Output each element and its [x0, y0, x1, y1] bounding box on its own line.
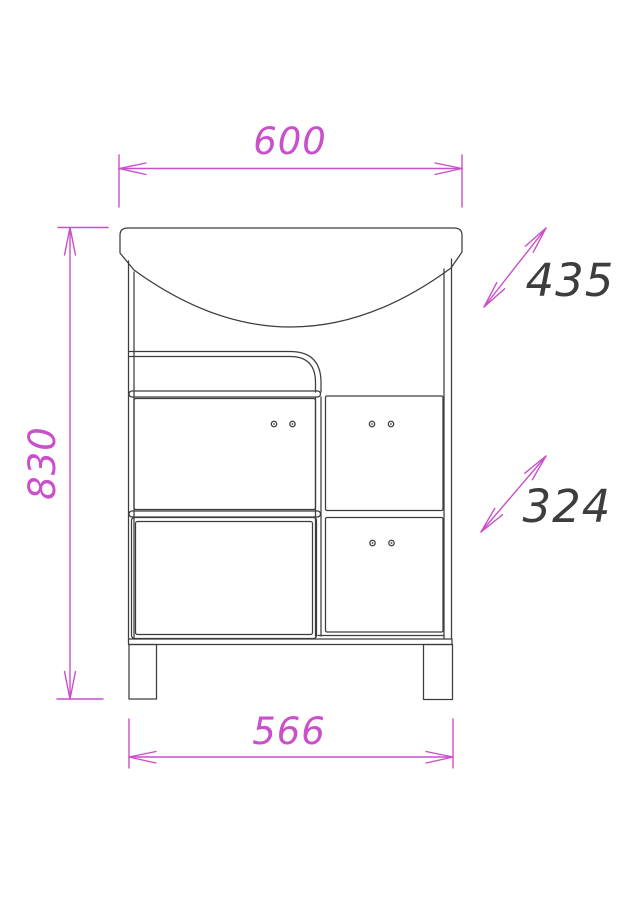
knob-dot-icon — [372, 542, 374, 544]
left-panel-lower-inner — [136, 522, 313, 635]
knob-dot-icon — [391, 542, 393, 544]
dimension-overall-height: 830 — [21, 228, 108, 700]
dimension-annotations: 600 830 435 — [21, 120, 614, 768]
shelf-band-lower — [129, 511, 321, 517]
right-drawer-upper-knobs — [369, 421, 393, 426]
technical-drawing-page: 600 830 435 — [0, 0, 636, 900]
top-width-label: 600 — [253, 120, 327, 163]
overall-height-label: 830 — [21, 426, 64, 500]
base-width-label: 566 — [252, 710, 326, 753]
left-door-upper — [134, 399, 316, 510]
dimension-upper-depth: 435 — [484, 228, 614, 307]
left-leg — [129, 645, 157, 700]
right-leg — [424, 645, 453, 700]
lower-depth-label: 324 — [523, 480, 612, 533]
right-drawer-lower-knobs — [370, 540, 394, 545]
dimension-top-width: 600 — [119, 120, 462, 207]
shelf-band-upper — [129, 391, 321, 397]
knob-dot-icon — [292, 423, 294, 425]
knob-dot-icon — [371, 423, 373, 425]
right-drawer-lower — [326, 518, 444, 633]
cabinet-drawing — [120, 228, 462, 700]
right-drawer-upper — [326, 396, 444, 511]
upper-depth-label: 435 — [526, 254, 615, 307]
bottom-band — [129, 639, 453, 645]
niche-frame-inner — [129, 357, 316, 393]
knob-dot-icon — [273, 423, 275, 425]
left-door-knobs — [271, 421, 295, 426]
dimension-lower-depth: 324 — [481, 456, 611, 533]
niche-frame-outer — [129, 352, 322, 393]
vanity-dimension-drawing: 600 830 435 — [0, 0, 636, 900]
dimension-base-width: 566 — [129, 710, 453, 768]
left-panel-lower-outer — [132, 518, 317, 639]
sink-basin-outline — [120, 228, 462, 327]
knob-dot-icon — [390, 423, 392, 425]
